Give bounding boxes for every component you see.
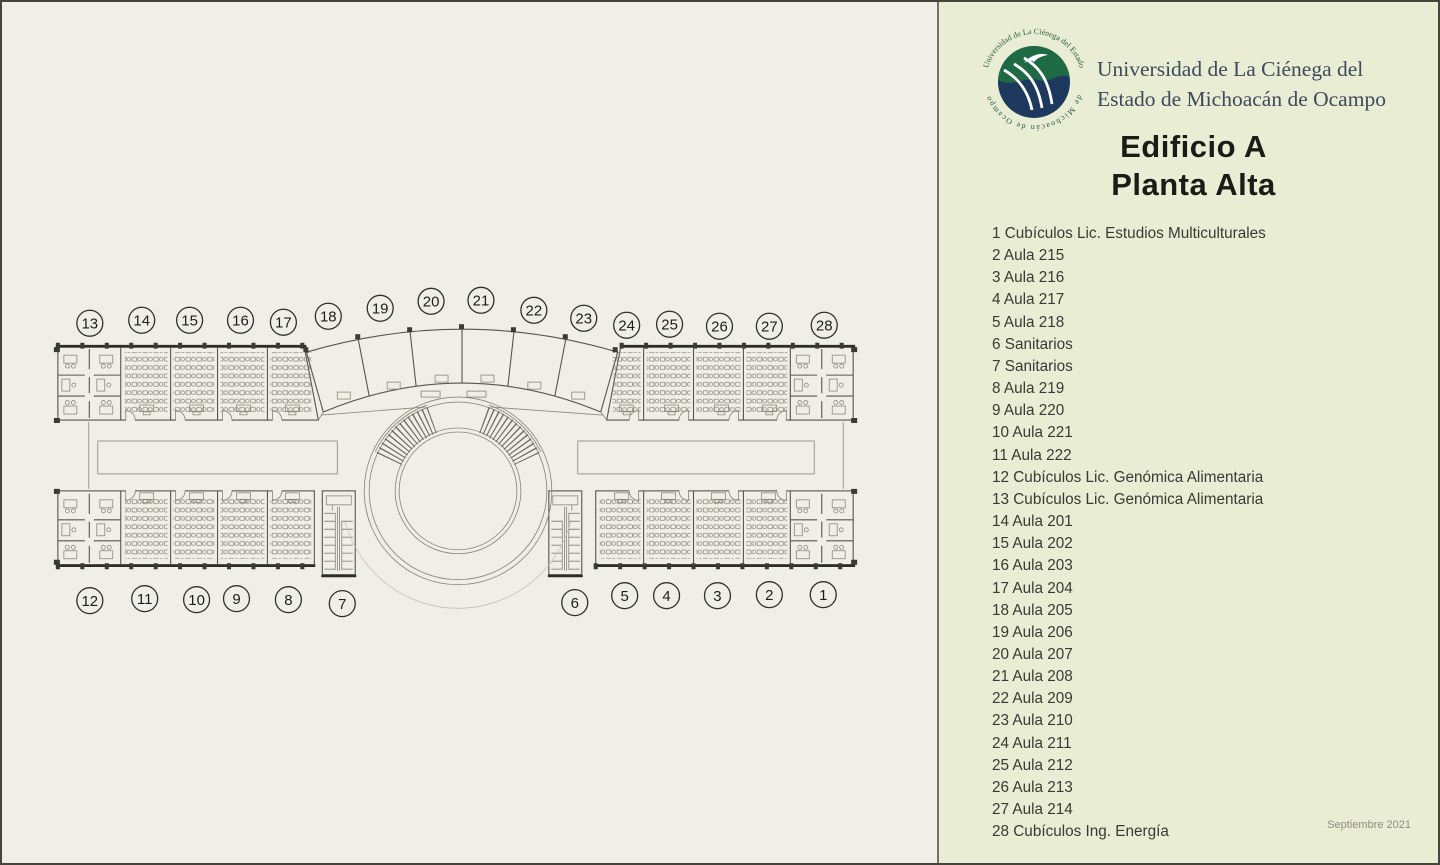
date-note: Septiembre 2021: [1327, 819, 1411, 831]
university-name: Universidad de La Ciénega del Estado de …: [1097, 55, 1386, 114]
classroom-9-desks: [221, 499, 265, 559]
room-bubble-number-17: 17: [275, 314, 292, 331]
room-bubble-number-5: 5: [621, 588, 629, 605]
room-bubble-number-15: 15: [181, 312, 198, 329]
room-bubble-number-16: 16: [232, 312, 249, 329]
room-bubble-number-24: 24: [618, 317, 635, 334]
university-name-line1: Universidad de La Ciénega del: [1097, 55, 1386, 85]
legend-item-4: 4 Aula 217: [992, 289, 1266, 311]
plan-title-line2: Planta Alta: [949, 166, 1438, 204]
poster-page: 1234567891011121314151617181920212223242…: [0, 0, 1440, 865]
room-bubble-number-18: 18: [320, 308, 337, 325]
classroom-3-desks: [697, 499, 741, 559]
room-bubble-number-3: 3: [713, 588, 721, 605]
legend-item-20: 20 Aula 207: [992, 644, 1266, 666]
plan-title-line1: Edificio A: [949, 128, 1438, 166]
room-bubble-number-27: 27: [761, 318, 778, 335]
room-number-bubbles: 1234567891011121314151617181920212223242…: [77, 287, 837, 616]
room-bubble-number-19: 19: [372, 300, 389, 317]
band-columns: [303, 324, 617, 352]
room-bubble-number-13: 13: [81, 315, 98, 332]
legend-item-27: 27 Aula 214: [992, 799, 1266, 821]
university-logo: Universidad de La Ciénega del Estado de …: [974, 22, 1094, 142]
room-bubble-number-21: 21: [473, 292, 490, 309]
floor-plan-area: 1234567891011121314151617181920212223242…: [2, 2, 939, 863]
restrooms-7: [321, 491, 356, 576]
room-bubble-number-28: 28: [816, 317, 833, 334]
legend-item-13: 13 Cubículos Lic. Genómica Alimentaria: [992, 489, 1266, 511]
curved-classroom-band: [303, 324, 617, 420]
room-bubble-number-2: 2: [765, 587, 773, 604]
corridor-left: [98, 441, 337, 474]
rotunda-connectors: [321, 407, 602, 415]
classroom-10-desks: [174, 499, 215, 559]
floor-plan-svg: 1234567891011121314151617181920212223242…: [2, 2, 937, 863]
left-wing-top: [56, 346, 318, 420]
room-bubble-number-6: 6: [571, 595, 579, 612]
legend-item-28: 28 Cubículos Ing. Energía: [992, 821, 1266, 843]
room-bubble-number-22: 22: [526, 302, 543, 319]
legend-panel: Universidad de La Ciénega del Estado de …: [939, 2, 1438, 863]
legend-item-6: 6 Sanitarios: [992, 334, 1266, 356]
legend-item-14: 14 Aula 201: [992, 511, 1266, 533]
stairs-left: [389, 420, 432, 459]
classroom-5-desks: [600, 499, 641, 559]
legend-item-1: 1 Cubículos Lic. Estudios Multiculturale…: [992, 223, 1266, 245]
room-bubble-number-25: 25: [661, 316, 678, 333]
room-bubble-number-11: 11: [137, 591, 153, 608]
classroom-8-desks: [270, 499, 311, 559]
restrooms-6: [548, 491, 583, 576]
room-bubble-number-14: 14: [133, 312, 150, 329]
room-bubble-number-10: 10: [188, 592, 205, 609]
legend-item-19: 19 Aula 206: [992, 622, 1266, 644]
right-wing-bottom: [548, 491, 855, 576]
legend-item-10: 10 Aula 221: [992, 422, 1266, 444]
room-bubble-number-4: 4: [662, 588, 670, 605]
legend-item-5: 5 Aula 218: [992, 312, 1266, 334]
room-bubble-number-7: 7: [338, 596, 346, 613]
corridor-bench: [467, 391, 486, 397]
corridor-right: [578, 441, 814, 474]
classroom-4-desks: [647, 499, 691, 559]
room-bubble-number-26: 26: [711, 318, 728, 335]
classroom-11-desks: [125, 499, 168, 559]
classroom-2-desks: [746, 499, 787, 559]
room-bubble-number-12: 12: [81, 593, 98, 610]
legend-item-3: 3 Aula 216: [992, 267, 1266, 289]
legend-item-21: 21 Aula 208: [992, 666, 1266, 688]
left-wing-bottom: [56, 491, 356, 576]
legend-item-16: 16 Aula 203: [992, 555, 1266, 577]
stairs-right: [484, 420, 527, 459]
room-bubble-number-23: 23: [575, 310, 592, 327]
legend-item-25: 25 Aula 212: [992, 755, 1266, 777]
legend-item-12: 12 Cubículos Lic. Genómica Alimentaria: [992, 467, 1266, 489]
legend-item-11: 11 Aula 222: [992, 445, 1266, 467]
legend-item-8: 8 Aula 219: [992, 378, 1266, 400]
legend-item-23: 23 Aula 210: [992, 710, 1266, 732]
room-bubble-number-9: 9: [232, 591, 240, 608]
legend-item-18: 18 Aula 205: [992, 600, 1266, 622]
rotunda-walkway-arc: [345, 522, 571, 608]
room-bubble-number-1: 1: [819, 587, 827, 604]
university-name-line2: Estado de Michoacán de Ocampo: [1097, 85, 1386, 115]
corridor-bench: [421, 391, 440, 397]
plan-title: Edificio A Planta Alta: [939, 128, 1438, 204]
legend-item-7: 7 Sanitarios: [992, 356, 1266, 378]
legend-item-17: 17 Aula 204: [992, 578, 1266, 600]
legend-item-9: 9 Aula 220: [992, 400, 1266, 422]
legend-item-22: 22 Aula 209: [992, 688, 1266, 710]
legend-item-26: 26 Aula 213: [992, 777, 1266, 799]
legend-list: 1 Cubículos Lic. Estudios Multiculturale…: [992, 223, 1266, 843]
room-bubble-number-8: 8: [284, 592, 292, 609]
legend-item-2: 2 Aula 215: [992, 245, 1266, 267]
legend-item-15: 15 Aula 202: [992, 533, 1266, 555]
legend-item-24: 24 Aula 211: [992, 733, 1266, 755]
right-wing-top: [607, 346, 855, 420]
room-bubble-number-20: 20: [423, 293, 440, 310]
